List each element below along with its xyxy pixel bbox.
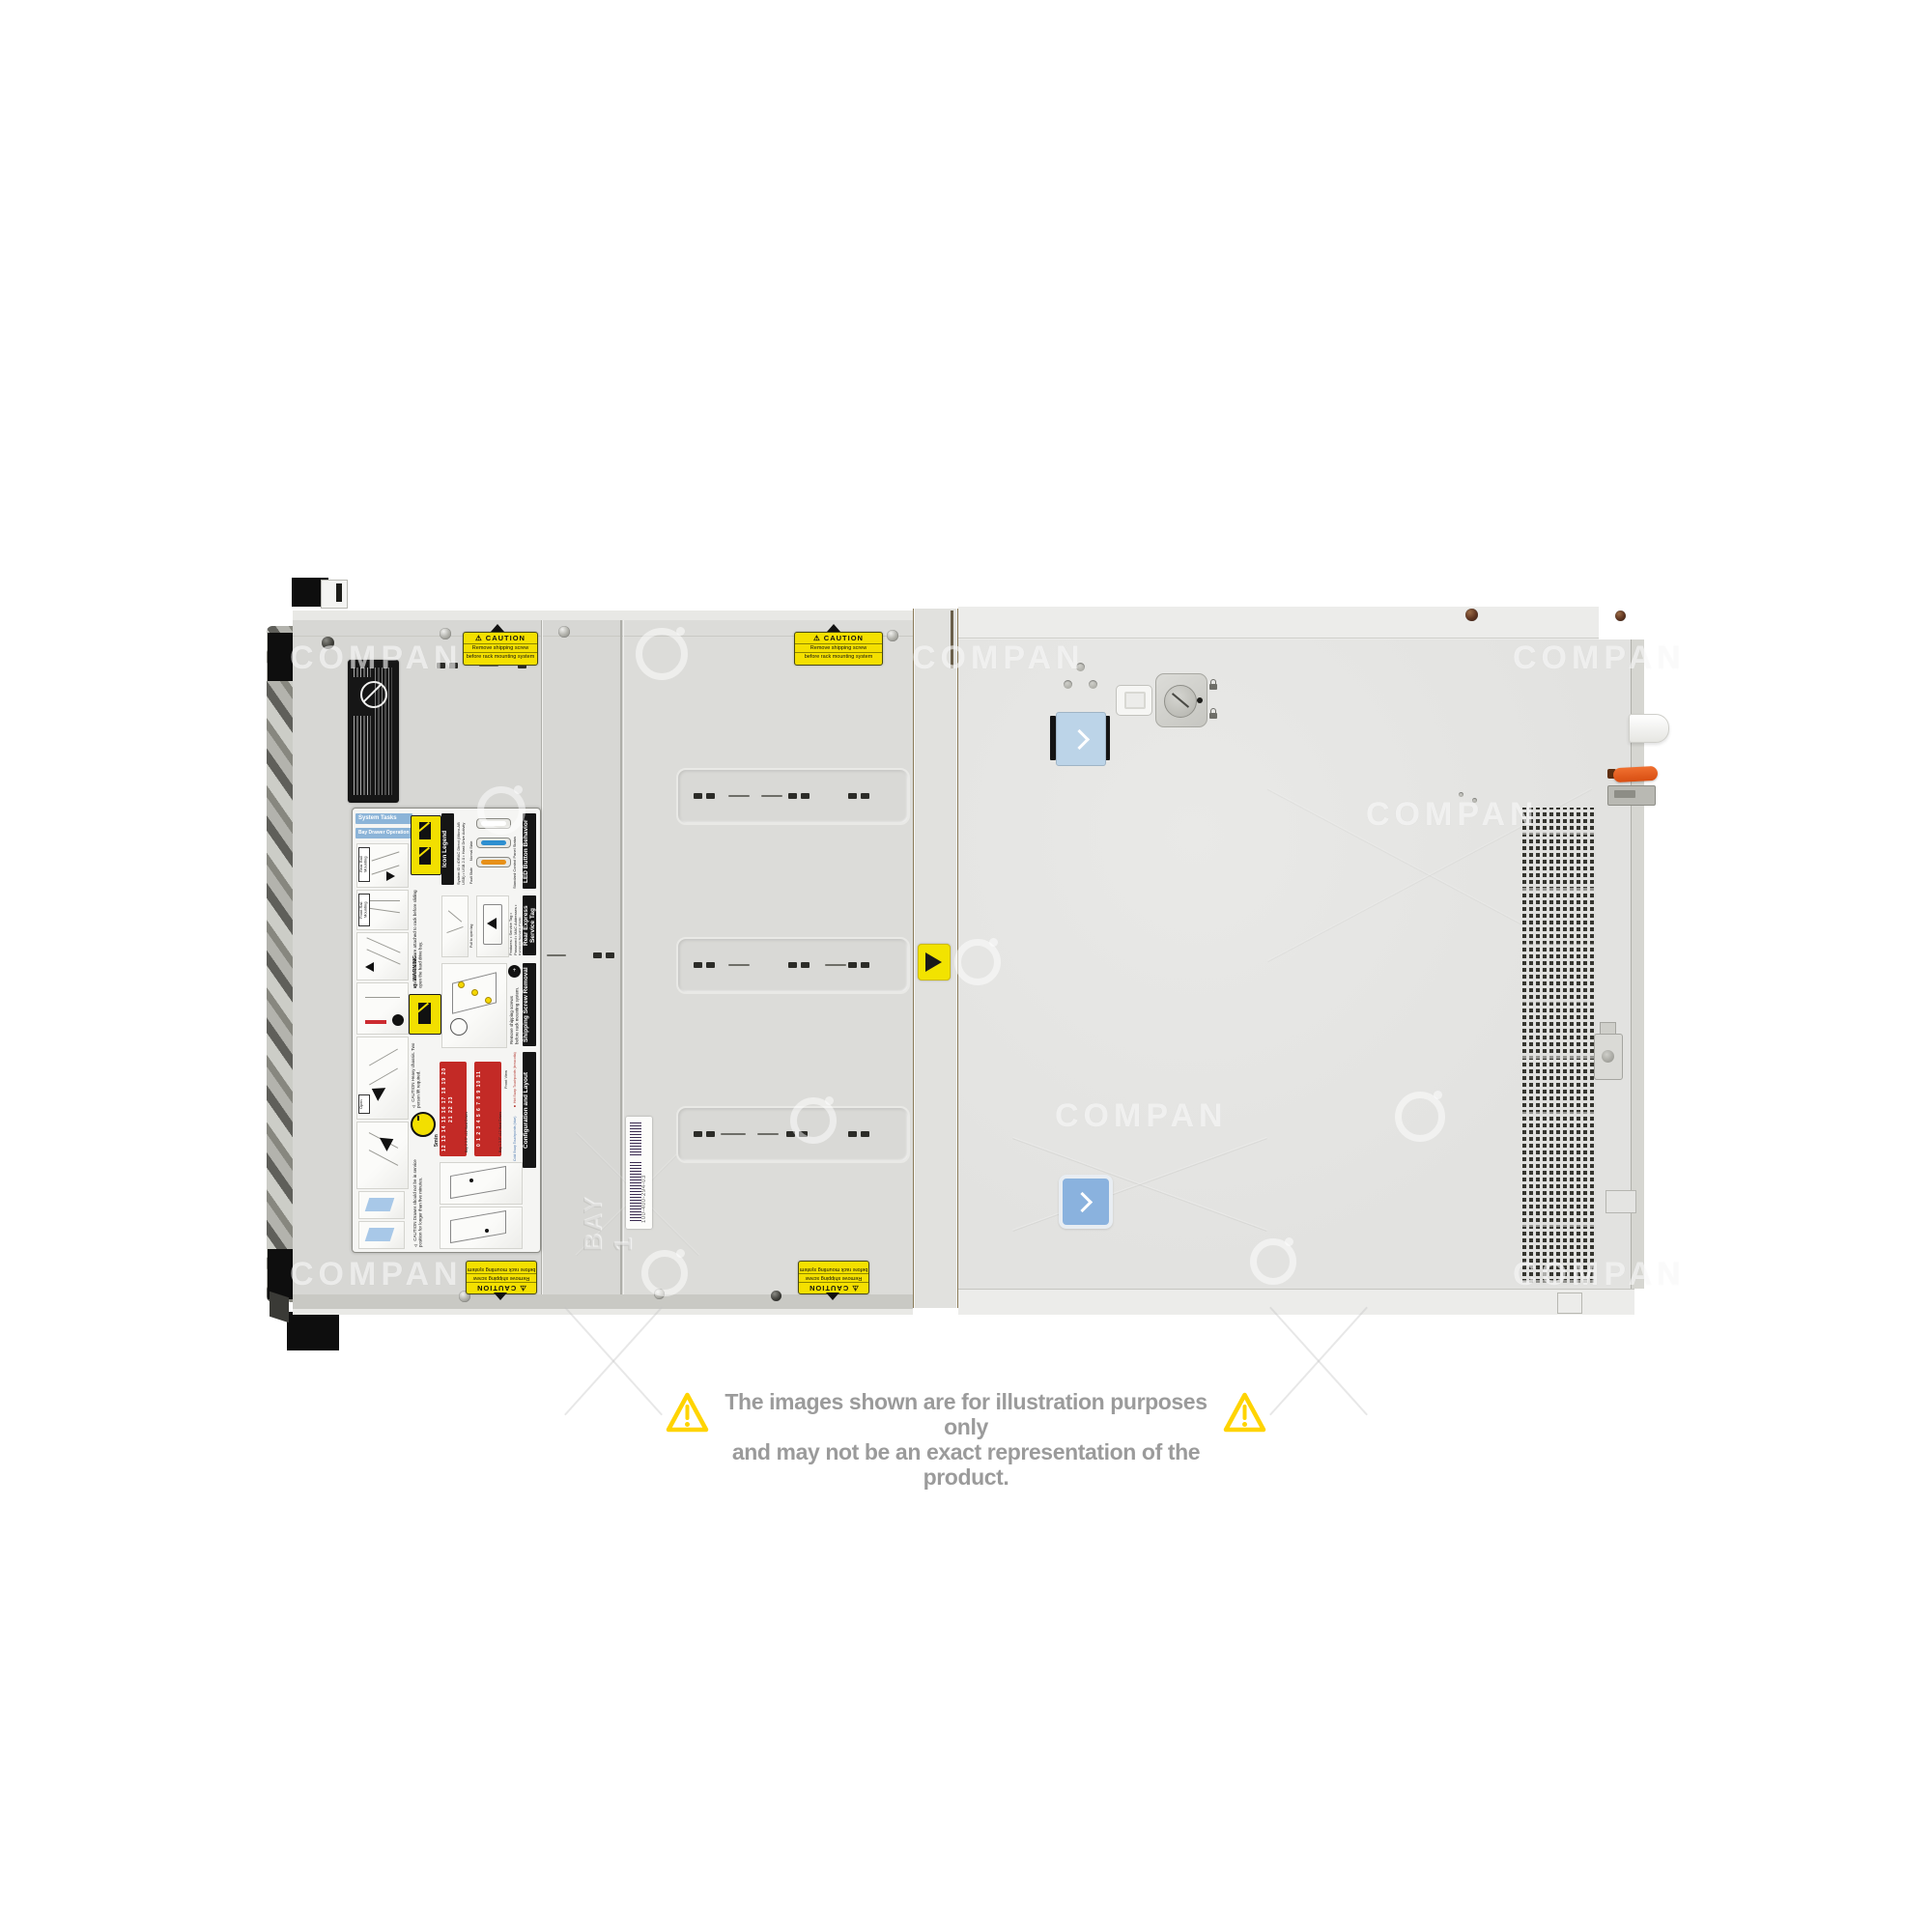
watermark-logo-icon: [641, 1250, 688, 1296]
config-header: Configuration and Layout: [523, 1052, 536, 1168]
vent-slot: [694, 793, 702, 799]
vent-slot: [848, 793, 857, 799]
band-notch: [1557, 1293, 1582, 1314]
open-tag: Open: [358, 1094, 370, 1114]
screw: [1465, 609, 1478, 621]
vent-slot: [861, 962, 869, 968]
slider-latch: [1116, 685, 1152, 716]
watermark-text: COMPAN: [912, 639, 1085, 677]
label-pointer: [826, 1293, 839, 1300]
drawer-release-latch: [1059, 1175, 1113, 1229]
corner-bracket-bottom-left: [287, 1312, 339, 1350]
disclaimer-banner: The images shown are for illustration pu…: [665, 1387, 1267, 1445]
vent-slot: [706, 962, 715, 968]
screw-icon: +: [508, 965, 521, 978]
vent-slot: [848, 1131, 857, 1137]
orange-release-lever: [1613, 766, 1659, 782]
stamp-dash: [728, 964, 750, 966]
watermark-logo-icon: [1250, 1238, 1296, 1285]
label-pointer: [827, 624, 840, 632]
pinch-warning-icon: [409, 994, 441, 1035]
warning-triangle-icon: [1222, 1391, 1267, 1434]
led-bar-normal: [476, 838, 511, 848]
caution-label-top-middle: ⚠ CAUTION Remove shipping screw before r…: [794, 632, 883, 666]
watermark-text: COMPAN: [1055, 1097, 1228, 1135]
keylock-icon: [1164, 685, 1197, 718]
disclaimer-line1: The images shown are for illustration pu…: [715, 1389, 1217, 1439]
caution-heavy-text: ⚠ CAUTION Heavy chassis. Two person lift…: [411, 1038, 436, 1108]
product-photo-canvas: ⚠ CAUTION Remove shipping screw before r…: [0, 0, 1932, 1932]
watermark-logo-icon: [790, 1097, 837, 1144]
vent-slot: [606, 952, 614, 958]
side-latch-plate: [1594, 1034, 1623, 1080]
disclaimer-line2: and may not be an exact representation o…: [715, 1439, 1217, 1490]
caution-line2: before rack mounting system: [795, 652, 882, 661]
ssr-body: Remove shipping screws before rack mount…: [509, 982, 521, 1044]
vent-slot: [848, 962, 857, 968]
rest-diagram: [476, 895, 509, 957]
stamp-dash: [825, 964, 846, 966]
vent-slot: [694, 1131, 702, 1137]
cover-release-latch: [1056, 712, 1106, 766]
regulatory-text-lines: [354, 716, 371, 795]
caution-line1: Remove shipping screw: [799, 1274, 868, 1283]
rest-features: Features: • Service Tag • Password • MAC…: [509, 895, 521, 955]
barcode-icon: [630, 1122, 641, 1155]
side-step-bracket: [1605, 1190, 1636, 1213]
screw: [771, 1291, 781, 1301]
drawer-position-diagram: [358, 1221, 405, 1249]
vent-slot: [801, 962, 810, 968]
panel-seam-highlight: [623, 620, 624, 1294]
cover-hairline: [958, 638, 1599, 639]
stamp-dash: [761, 795, 782, 797]
caution-line2: before rack mounting system: [799, 1265, 868, 1274]
vent-grid: [1522, 808, 1596, 1283]
config-diagram: [440, 1207, 523, 1249]
cover-lock-plate: [1155, 673, 1207, 727]
vent-slot: [861, 1131, 869, 1137]
vent-slot: [706, 1131, 715, 1137]
caution-line1: Remove shipping screw: [464, 643, 537, 652]
front-rail-tag: Front Rail Mounting: [358, 894, 370, 926]
bay1-label: Bay 1 3.5" x12 Hard Drives: [498, 1062, 504, 1152]
vent-slot: [801, 793, 810, 799]
bay2-label: Bay 2 3.5" x12 Hard Drives: [465, 1062, 470, 1152]
watermark-text: COMPAN: [1366, 796, 1539, 834]
chevron-right-icon: [1072, 1192, 1093, 1212]
screw: [558, 626, 570, 638]
bay-drawer-header: Bay Drawer Operation: [355, 828, 412, 838]
stamp-dash: [721, 1133, 746, 1135]
rear-rail-tag: Rear Rail Mounting: [358, 847, 370, 882]
rest-header: Rear Express Service Tag: [523, 895, 536, 955]
cover-hole: [1089, 680, 1097, 689]
hand-diagram: [441, 895, 469, 957]
vent-slot: [694, 962, 702, 968]
led-bar-fault: [476, 857, 511, 867]
screw: [440, 628, 451, 639]
system-tasks-header: System Tasks: [355, 813, 412, 824]
caution-line2: before rack mounting system: [467, 1265, 536, 1274]
label-pointer: [494, 1293, 507, 1300]
part-number-sticker: 100-400-294-03: [626, 1117, 652, 1229]
warning-body: Ensure that rails are attached to rack b…: [412, 880, 423, 988]
icon-legend-header: Icon Legend: [441, 813, 454, 885]
ssr-diagram: [441, 963, 507, 1048]
panel-seam: [620, 620, 622, 1294]
keylock-slot: [1172, 693, 1189, 708]
config-diagram: [440, 1162, 523, 1205]
cover-hole: [1064, 680, 1072, 689]
screw: [1615, 611, 1626, 621]
caution-title: ⚠ CAUTION: [795, 633, 882, 643]
rest-pull-label: Pull to open tag: [469, 903, 475, 948]
label-pointer: [491, 624, 504, 632]
warning-triangle-icon: [665, 1391, 710, 1434]
vent-slot: [706, 793, 715, 799]
step-diagram: [356, 932, 409, 980]
watermark-logo-icon: [1395, 1092, 1445, 1142]
part-number: 100-400-294-03: [641, 1122, 650, 1223]
panel-seam-highlight: [542, 620, 543, 1294]
vent-slot: [593, 952, 602, 958]
step-diagram: [356, 982, 409, 1035]
warning-text: ⚠ WARNING Ensure that rails are attached…: [412, 880, 438, 988]
unlock-icon: [1209, 684, 1217, 690]
pinch-hazard-sticker: [918, 944, 951, 980]
drawer-release-tab: [321, 580, 348, 609]
icon-legend-items: System ID • iDRAC Direct (Micro-AB USB) …: [457, 813, 469, 885]
watermark-logo-icon: [636, 628, 688, 680]
drawer-front-edge: [267, 626, 293, 1302]
disclaimer-text: The images shown are for illustration pu…: [715, 1389, 1217, 1490]
pull-handle: [1629, 714, 1669, 743]
pinch-warning-icon: [411, 815, 441, 875]
front-view-label: Front View: [504, 1054, 511, 1089]
stamp-dash: [547, 954, 566, 956]
caution-label-bottom-left: ⚠ CAUTION Remove shipping screw before r…: [466, 1261, 537, 1294]
lock-dot: [1197, 697, 1203, 703]
five-min-clock-icon: [411, 1112, 436, 1137]
service-info-label: System Tasks Bay Drawer Operation Rear R…: [352, 808, 541, 1253]
watermark-text: COMPAN: [1513, 1256, 1686, 1293]
bay1-drive-table: 0 1 2 3 4 5 6 7 8 9 10 11: [474, 1062, 501, 1156]
ssr-header: Shipping Screw Removal: [523, 963, 536, 1046]
watermark-text: COMPAN: [290, 1256, 463, 1293]
caution-label-bottom-middle: ⚠ CAUTION Remove shipping screw before r…: [798, 1261, 869, 1294]
caution-line2: before rack mounting system: [464, 652, 537, 661]
stamped-recess: [676, 768, 910, 825]
cold-swap-legend: ■ Cold Swap Touchpoints (blue): [513, 1110, 520, 1166]
drawer-bottom-band: [293, 1294, 913, 1309]
watermark-text: COMPAN: [1513, 639, 1686, 677]
led-fault-label: Fault State: [469, 857, 475, 884]
caution-line1: Remove shipping screw: [467, 1274, 536, 1283]
watermark-logo-icon: [954, 939, 1001, 985]
drawer-position-diagram: [358, 1191, 405, 1219]
caution-drawer-text: ⚠ CAUTION Drawer should not be in servic…: [412, 1152, 436, 1247]
led-header: LED Button Behavior: [523, 813, 536, 889]
screw: [887, 630, 898, 641]
watermark-text: COMPAN: [290, 639, 463, 677]
caution-title: ⚠ CAUTION: [464, 633, 537, 643]
latch-hardware: [1607, 785, 1656, 806]
lock-icon: [1209, 713, 1217, 719]
regulatory-label: [348, 660, 399, 803]
watermark-logo-icon: [477, 786, 526, 835]
vent-slot: [788, 793, 797, 799]
corner-wedge-bottom-left: [270, 1292, 289, 1322]
barcode-icon: [630, 1161, 641, 1221]
vent-slot: [788, 962, 797, 968]
bay2-drive-table: 12 13 14 15 16 17 18 19 20 21 22 23: [440, 1062, 467, 1156]
cover-top-bevel: [958, 607, 1599, 640]
caution-label-top-left: ⚠ CAUTION Remove shipping screw before r…: [463, 632, 538, 666]
caution-line1: Remove shipping screw: [795, 643, 882, 652]
vent-slot: [861, 793, 869, 799]
stamped-recess: [676, 937, 910, 994]
stamp-dash: [757, 1133, 779, 1135]
drawer-release-slot: [336, 583, 342, 602]
chevron-right-icon: [1069, 729, 1090, 750]
stamp-dash: [728, 795, 750, 797]
drawer-bottom-lip: [293, 1309, 913, 1315]
embossed-bay-text: BAY 1: [578, 1173, 616, 1252]
hot-swap-legend: ■ Hot Swap Touchpoints (terracotta): [513, 1052, 520, 1108]
prohibition-icon: [360, 681, 387, 708]
step-diagram: [356, 1122, 409, 1189]
